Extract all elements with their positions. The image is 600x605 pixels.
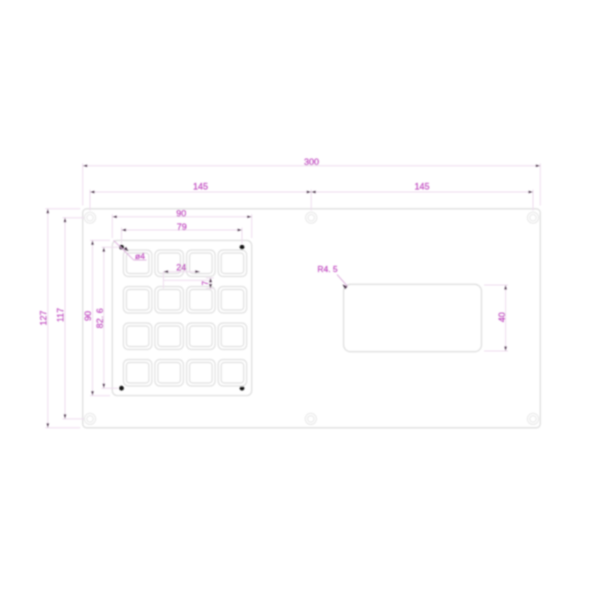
svg-text:79: 79	[177, 222, 187, 232]
svg-text:40: 40	[497, 312, 507, 322]
svg-text:300: 300	[304, 157, 319, 167]
svg-text:24: 24	[176, 263, 186, 273]
svg-text:90: 90	[176, 208, 186, 218]
svg-text:R4. 5: R4. 5	[317, 264, 338, 274]
svg-text:117: 117	[56, 308, 66, 322]
svg-text:ø4: ø4	[135, 251, 145, 261]
svg-text:127: 127	[38, 310, 48, 325]
svg-text:90: 90	[83, 311, 93, 321]
svg-text:82. 6: 82. 6	[95, 308, 105, 328]
svg-text:7: 7	[200, 281, 210, 286]
svg-text:145: 145	[193, 182, 208, 192]
svg-text:145: 145	[414, 182, 429, 192]
